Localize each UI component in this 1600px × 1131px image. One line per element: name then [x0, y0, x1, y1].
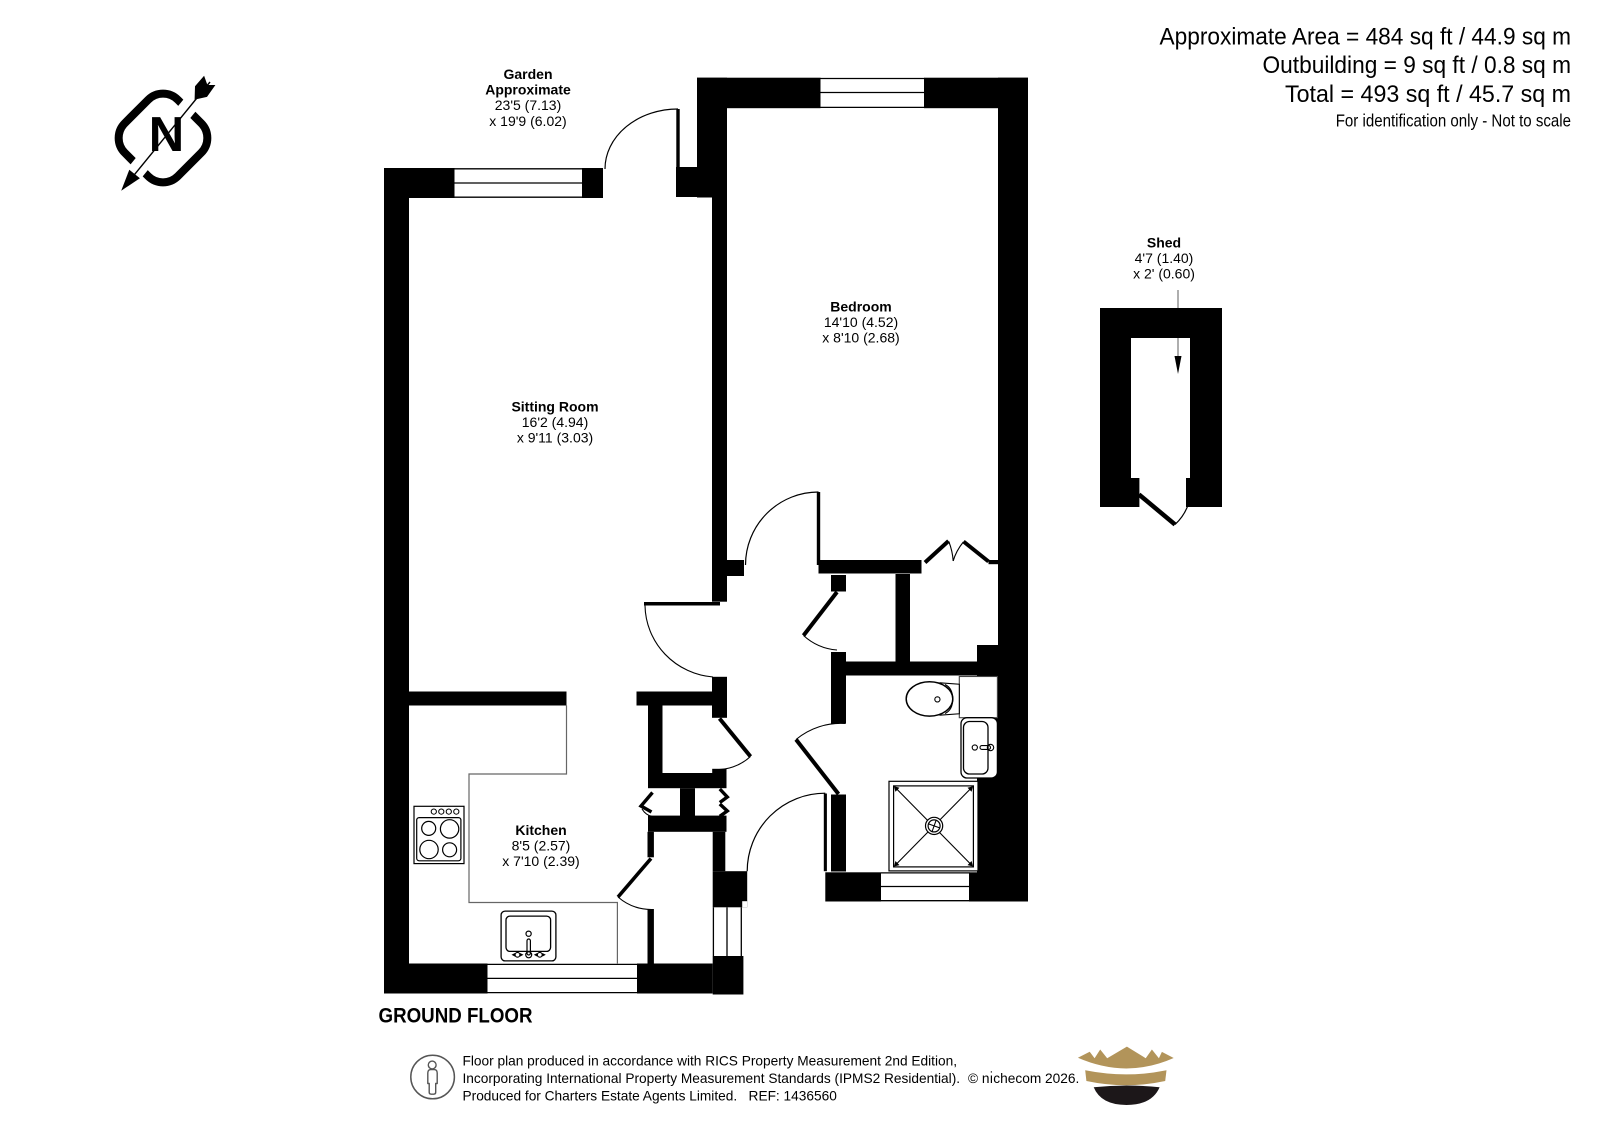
svg-text:GROUND FLOOR: GROUND FLOOR — [379, 1005, 533, 1028]
svg-text:x 7'10 (2.39): x 7'10 (2.39) — [502, 853, 579, 869]
svg-text:Garden: Garden — [503, 66, 552, 82]
svg-text:Outbuilding = 9 sq ft / 0.8 sq: Outbuilding = 9 sq ft / 0.8 sq m — [1263, 52, 1572, 79]
svg-text:16'2 (4.94): 16'2 (4.94) — [522, 414, 589, 430]
svg-text:Approximate Area = 484 sq ft /: Approximate Area = 484 sq ft / 44.9 sq m — [1160, 23, 1572, 50]
svg-text:Sitting Room: Sitting Room — [511, 399, 598, 415]
svg-text:Produced for Charters Estate A: Produced for Charters Estate Agents Limi… — [463, 1089, 838, 1104]
svg-text:x 2' (0.60): x 2' (0.60) — [1133, 266, 1195, 282]
svg-text:Approximate: Approximate — [485, 82, 571, 98]
svg-text:© nı̇checom 2026.: © nı̇checom 2026. — [968, 1071, 1079, 1086]
svg-text:14'10 (4.52): 14'10 (4.52) — [824, 314, 898, 330]
svg-text:4'7 (1.40): 4'7 (1.40) — [1135, 250, 1194, 266]
svg-text:Bedroom: Bedroom — [830, 299, 891, 315]
svg-text:8'5 (2.57): 8'5 (2.57) — [512, 838, 571, 854]
svg-text:Kitchen: Kitchen — [515, 822, 566, 838]
svg-text:x 19'9 (6.02): x 19'9 (6.02) — [489, 113, 566, 129]
svg-text:Total = 493 sq ft / 45.7 sq m: Total = 493 sq ft / 45.7 sq m — [1285, 81, 1571, 108]
svg-text:x 9'11 (3.03): x 9'11 (3.03) — [517, 430, 593, 446]
svg-text:Incorporating International Pr: Incorporating International Property Mea… — [463, 1071, 961, 1086]
svg-text:For identification only - Not: For identification only - Not to scale — [1336, 111, 1571, 131]
svg-text:23'5 (7.13): 23'5 (7.13) — [495, 97, 562, 113]
svg-text:Floor plan produced in accorda: Floor plan produced in accordance with R… — [463, 1054, 958, 1069]
svg-text:x 8'10 (2.68): x 8'10 (2.68) — [822, 330, 899, 346]
svg-text:Shed: Shed — [1147, 235, 1181, 251]
